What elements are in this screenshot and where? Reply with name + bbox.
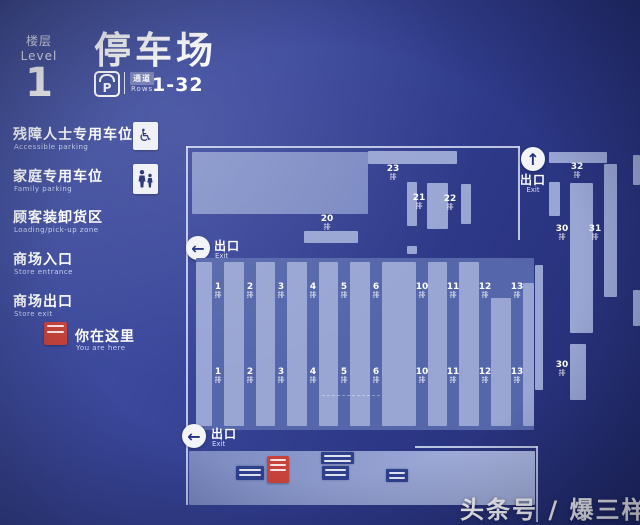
- floor-label-zh: 楼层: [16, 32, 62, 49]
- row-label-bottom-5: 5排: [333, 368, 355, 385]
- store-label-box: [321, 452, 354, 464]
- parking-row-bar-edge1: [633, 155, 640, 185]
- parking-row-bar-r5: [535, 265, 543, 390]
- row-label-bottom-1: 1排: [207, 368, 229, 385]
- legend-family-en: Family parking: [14, 185, 72, 193]
- legend-loading-zh: 顾客装卸货区: [13, 207, 103, 227]
- you-are-here-marker: [267, 456, 289, 483]
- legend-youarehere-en: You are here: [76, 344, 126, 352]
- parking-icon: P: [94, 71, 120, 97]
- you-are-here-legend-icon: [44, 322, 67, 345]
- left-arrow-icon: ←: [187, 427, 200, 446]
- row-label-top-6: 6排: [365, 283, 387, 300]
- aisle-range: 1-32: [152, 74, 204, 96]
- parking-row-bar-23: [368, 151, 457, 164]
- row-label-bottom-4: 4排: [302, 368, 324, 385]
- row-label-top-1: 1排: [207, 283, 229, 300]
- row-label-bottom-2: 2排: [239, 368, 261, 385]
- row-label-31: 31排: [584, 225, 606, 242]
- parking-icon-letter: P: [96, 82, 118, 94]
- map-wall-left: [186, 146, 188, 505]
- row-label-21: 21排: [408, 194, 430, 211]
- legend-accessible-zh: 残障人士专用车位: [13, 124, 133, 144]
- header-divider: [124, 72, 125, 94]
- exit-left-lower-label: 出口: [211, 428, 237, 440]
- row-label-top-13: 13排: [506, 283, 528, 300]
- parking-row-bar: [523, 283, 534, 426]
- aisle-chip: 通道: [130, 72, 154, 85]
- row-label-bottom-12: 12排: [474, 368, 496, 385]
- exit-up-label: 出口: [520, 174, 546, 186]
- watermark: 头条号 / 爆三样: [460, 490, 640, 525]
- page-title: 停车场: [94, 32, 217, 69]
- row-label-top-11: 11排: [442, 283, 464, 300]
- parking-row-bar-r3: [570, 183, 593, 333]
- row-label-22: 22排: [439, 195, 461, 212]
- row-label-20: 20排: [316, 215, 338, 232]
- family-icon: [136, 169, 155, 189]
- row-label-top-2: 2排: [239, 283, 261, 300]
- legend-youarehere-zh: 你在这里: [75, 326, 135, 346]
- map-wall-top: [186, 146, 520, 148]
- legend-family-zh: 家庭专用车位: [13, 166, 103, 186]
- exit-left-upper-label: 出口: [214, 240, 240, 252]
- row-label-top-4: 4排: [302, 283, 324, 300]
- floor-block: 楼层 Level 1: [16, 32, 62, 103]
- legend-storeexit-en: Store exit: [14, 310, 53, 318]
- parking-grid: 1排 2排 3排 4排 5排 6排 10排 11排 12排 13排 1排 2排 …: [196, 258, 534, 430]
- exit-up-sublabel: Exit: [520, 187, 546, 194]
- row-label-bottom-11: 11排: [442, 368, 464, 385]
- left-arrow-icon: ←: [191, 239, 204, 258]
- lane-marking: [322, 395, 380, 396]
- legend-accessible-en: Accessible parking: [14, 143, 88, 151]
- row-label-bottom-6: 6排: [365, 368, 387, 385]
- aisle-chip-en: Rows: [131, 85, 153, 93]
- store-label-box: [236, 466, 264, 480]
- map-wall-bottom-right-h: [415, 446, 538, 448]
- store-label-box: [322, 466, 349, 480]
- row-label-bottom-3: 3排: [270, 368, 292, 385]
- parking-row-bar-22: [461, 184, 471, 224]
- exit-left-lower-sublabel: Exit: [212, 441, 225, 448]
- building-footprint: [192, 152, 368, 214]
- wheelchair-icon: ♿: [138, 126, 153, 146]
- parking-row-bar-20: [304, 231, 358, 243]
- row-label-bottom-13: 13排: [506, 368, 528, 385]
- floor-number: 1: [16, 63, 62, 103]
- parking-row-bar-r6: [570, 344, 586, 400]
- parking-row-stub: [407, 246, 417, 254]
- parking-sign: { "header": { "floor_label_zh": "楼层", "f…: [0, 0, 640, 525]
- row-label-23: 23排: [382, 165, 404, 182]
- parking-row-bar: [491, 298, 511, 426]
- row-label-top-12: 12排: [474, 283, 496, 300]
- row-label-top-5: 5排: [333, 283, 355, 300]
- up-arrow-icon: ↑: [526, 150, 539, 169]
- family-parking-iconbox: [133, 164, 158, 194]
- legend-entrance-en: Store entrance: [14, 268, 73, 276]
- parking-row-bar-r2: [549, 182, 560, 216]
- legend-loading-en: Loading/pick-up zone: [14, 226, 99, 234]
- row-label-bottom-10: 10排: [411, 368, 433, 385]
- parking-row-bar-edge2: [633, 290, 640, 326]
- row-label-top-3: 3排: [270, 283, 292, 300]
- exit-up-icon: ↑: [521, 147, 545, 171]
- legend-entrance-zh: 商场入口: [13, 249, 73, 269]
- store-label-box: [386, 469, 408, 482]
- legend-storeexit-zh: 商场出口: [13, 291, 73, 311]
- accessible-parking-iconbox: ♿: [133, 122, 158, 150]
- row-label-top-10: 10排: [411, 283, 433, 300]
- exit-left-lower-icon: ←: [182, 424, 206, 448]
- row-label-32: 32排: [566, 163, 588, 180]
- exit-left-upper-icon: ←: [186, 236, 210, 260]
- row-label-30: 30排: [551, 225, 573, 242]
